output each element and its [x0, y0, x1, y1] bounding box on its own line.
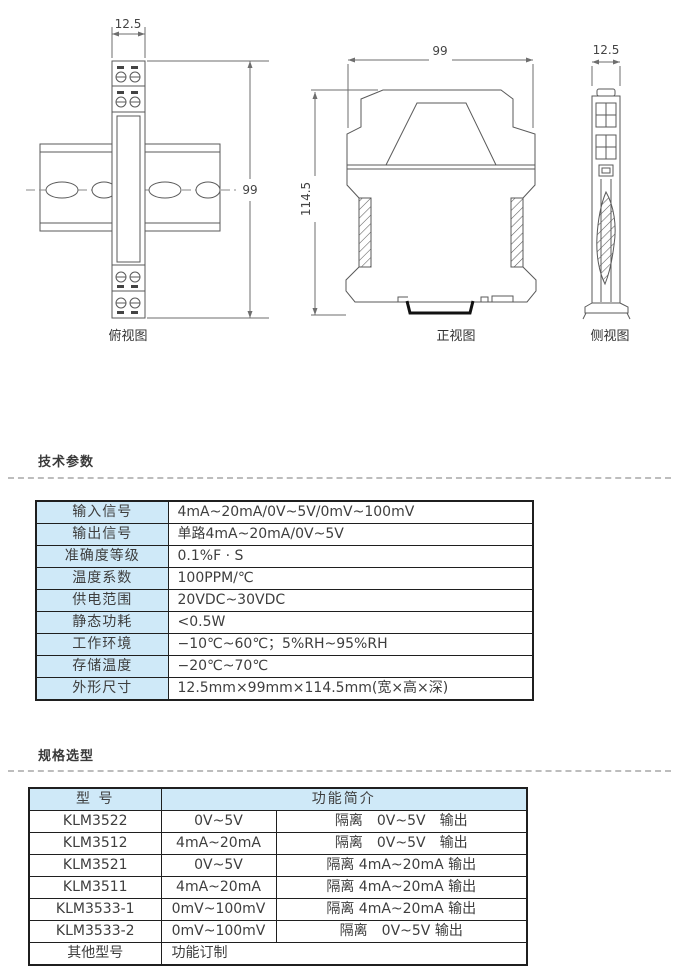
model-number: KLM3522 — [29, 811, 161, 833]
param-value: 单路4mA~20mA/0V~5V — [168, 524, 533, 546]
model-number: KLM3511 — [29, 877, 161, 899]
table-row: 存储温度−20℃~70℃ — [36, 656, 533, 678]
param-label: 准确度等级 — [36, 546, 168, 568]
output-description: 隔离 4mA~20mA 输出 — [276, 899, 527, 921]
spec-table: 型 号 功能简介 KLM35220V~5V隔离 0V~5V 输出 KLM3512… — [28, 787, 528, 966]
output-description: 隔离 0V~5V 输出 — [276, 811, 527, 833]
front-view-drawing: 99 114.5 正视图 — [299, 44, 536, 344]
table-row: 静态功耗<0.5W — [36, 612, 533, 634]
param-label: 存储温度 — [36, 656, 168, 678]
divider-dashed-1 — [8, 477, 671, 479]
table-row: KLM3533-20mV~100mV隔离 0V~5V 输出 — [29, 921, 527, 943]
heatsink-fins-left — [359, 198, 371, 267]
front-view-height-value: 114.5 — [299, 182, 313, 216]
input-range: 0V~5V — [161, 855, 276, 877]
device-front-outline — [346, 90, 536, 302]
param-value: 12.5mm×99mm×114.5mm(宽×高×深) — [168, 678, 533, 701]
param-label: 输出信号 — [36, 524, 168, 546]
table-row: KLM3533-10mV~100mV隔离 4mA~20mA 输出 — [29, 899, 527, 921]
input-range: 4mA~20mA — [161, 877, 276, 899]
table-row: 温度系数100PPM/℃ — [36, 568, 533, 590]
model-column-header: 型 号 — [29, 788, 161, 811]
tech-params-heading: 技术参数 — [38, 451, 94, 470]
param-label: 输入信号 — [36, 501, 168, 524]
table-row: KLM35220V~5V隔离 0V~5V 输出 — [29, 811, 527, 833]
table-row: 外形尺寸12.5mm×99mm×114.5mm(宽×高×深) — [36, 678, 533, 701]
table-row: KLM35124mA~20mA隔离 0V~5V 输出 — [29, 833, 527, 855]
front-view-width-value: 99 — [432, 44, 447, 58]
divider-dashed-2 — [8, 770, 671, 772]
datasheet-page: 12.5 99 俯视图 — [0, 0, 679, 977]
param-value: −10℃~60℃；5%RH~95%RH — [168, 634, 533, 656]
model-number: KLM3533-1 — [29, 899, 161, 921]
param-value: 4mA~20mA/0V~5V/0mV~100mV — [168, 501, 533, 524]
model-number: 其他型号 — [29, 943, 161, 966]
function-column-header: 功能简介 — [161, 788, 527, 811]
top-view-width-value: 12.5 — [115, 17, 142, 31]
param-label: 供电范围 — [36, 590, 168, 612]
heatsink-fins-right — [511, 198, 523, 267]
din-clip — [407, 301, 473, 313]
side-view-width-value: 12.5 — [593, 43, 620, 57]
table-row: KLM35210V~5V隔离 4mA~20mA 输出 — [29, 855, 527, 877]
param-label: 外形尺寸 — [36, 678, 168, 701]
output-description: 隔离 4mA~20mA 输出 — [276, 877, 527, 899]
table-row: KLM35114mA~20mA隔离 4mA~20mA 输出 — [29, 877, 527, 899]
tech-params-table: 输入信号4mA~20mA/0V~5V/0mV~100mV 输出信号单路4mA~2… — [35, 500, 534, 701]
custom-order-note: 功能订制 — [161, 943, 527, 966]
top-view-width-dimension — [112, 27, 145, 58]
output-description: 隔离 0V~5V 输出 — [276, 833, 527, 855]
spec-heading: 规格选型 — [38, 745, 94, 764]
output-description: 隔离 4mA~20mA 输出 — [276, 855, 527, 877]
table-row: 输出信号单路4mA~20mA/0V~5V — [36, 524, 533, 546]
param-value: 20VDC~30VDC — [168, 590, 533, 612]
model-number: KLM3512 — [29, 833, 161, 855]
table-row: 工作环境−10℃~60℃；5%RH~95%RH — [36, 634, 533, 656]
table-row: 输入信号4mA~20mA/0V~5V/0mV~100mV — [36, 501, 533, 524]
side-view-label: 侧视图 — [590, 329, 629, 344]
param-value: 0.1%F · S — [168, 546, 533, 568]
param-value: <0.5W — [168, 612, 533, 634]
table-row: 供电范围20VDC~30VDC — [36, 590, 533, 612]
side-view-width-dimension — [592, 60, 620, 87]
input-range: 0mV~100mV — [161, 921, 276, 943]
input-range: 4mA~20mA — [161, 833, 276, 855]
param-label: 静态功耗 — [36, 612, 168, 634]
table-header-row: 型 号 功能简介 — [29, 788, 527, 811]
mounting-spring — [597, 192, 615, 284]
table-row: 其他型号 功能订制 — [29, 943, 527, 966]
input-range: 0mV~100mV — [161, 899, 276, 921]
model-number: KLM3521 — [29, 855, 161, 877]
table-row: 准确度等级0.1%F · S — [36, 546, 533, 568]
param-label: 工作环境 — [36, 634, 168, 656]
param-value: −20℃~70℃ — [168, 656, 533, 678]
top-view-label: 俯视图 — [108, 328, 147, 344]
param-value: 100PPM/℃ — [168, 568, 533, 590]
top-view-drawing: 12.5 99 俯视图 — [26, 17, 269, 344]
input-range: 0V~5V — [161, 811, 276, 833]
param-label: 温度系数 — [36, 568, 168, 590]
front-view-label: 正视图 — [436, 329, 475, 344]
dimension-drawings: 12.5 99 俯视图 — [0, 0, 679, 372]
output-description: 隔离 0V~5V 输出 — [276, 921, 527, 943]
side-view-drawing: 12.5 侧视图 — [583, 43, 630, 344]
model-number: KLM3533-2 — [29, 921, 161, 943]
top-view-height-value: 99 — [242, 183, 257, 197]
